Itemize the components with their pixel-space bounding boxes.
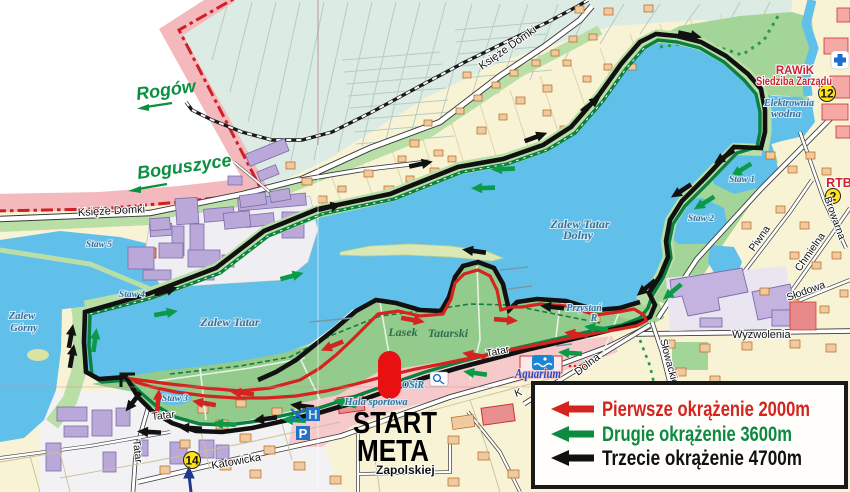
svg-text:Staw 5: Staw 5	[86, 240, 112, 250]
svg-text:Staw 2: Staw 2	[688, 214, 714, 224]
svg-text:12: 12	[820, 87, 834, 101]
svg-text:Górny: Górny	[10, 323, 38, 334]
svg-text:Dolny: Dolny	[562, 228, 594, 242]
svg-text:Zalew Tatar: Zalew Tatar	[199, 315, 260, 329]
svg-text:Tatar: Tatar	[130, 439, 144, 464]
svg-text:Tatarski: Tatarski	[428, 326, 469, 340]
svg-text:Staw 3: Staw 3	[162, 394, 188, 404]
svg-text:P: P	[299, 426, 308, 441]
svg-text:Tatar: Tatar	[151, 409, 176, 423]
svg-text:Staw 1: Staw 1	[729, 175, 755, 185]
svg-text:14: 14	[185, 454, 199, 468]
svg-text:Lasek: Lasek	[387, 325, 417, 339]
svg-text:H: H	[308, 407, 317, 422]
svg-text:wodna: wodna	[771, 108, 801, 120]
svg-text:Siedziba Zarządu: Siedziba Zarządu	[756, 76, 832, 88]
svg-text:R: R	[590, 313, 598, 324]
svg-text:Aquarium: Aquarium	[514, 366, 561, 381]
svg-text:Pierwsze okrążenie 2000m: Pierwsze okrążenie 2000m	[602, 398, 810, 421]
svg-text:Trzecie okrążenie 4700m: Trzecie okrążenie 4700m	[602, 447, 802, 470]
svg-text:Staw 4: Staw 4	[119, 290, 145, 300]
svg-text:META: META	[357, 433, 429, 468]
svg-text:Wyzwolenia: Wyzwolenia	[732, 329, 791, 341]
svg-text:Zalew: Zalew	[8, 311, 36, 322]
svg-text:RTB: RTB	[826, 176, 850, 190]
svg-text:Drugie okrążenie 3600m: Drugie okrążenie 3600m	[602, 423, 792, 446]
svg-text:OSiR: OSiR	[402, 380, 425, 391]
